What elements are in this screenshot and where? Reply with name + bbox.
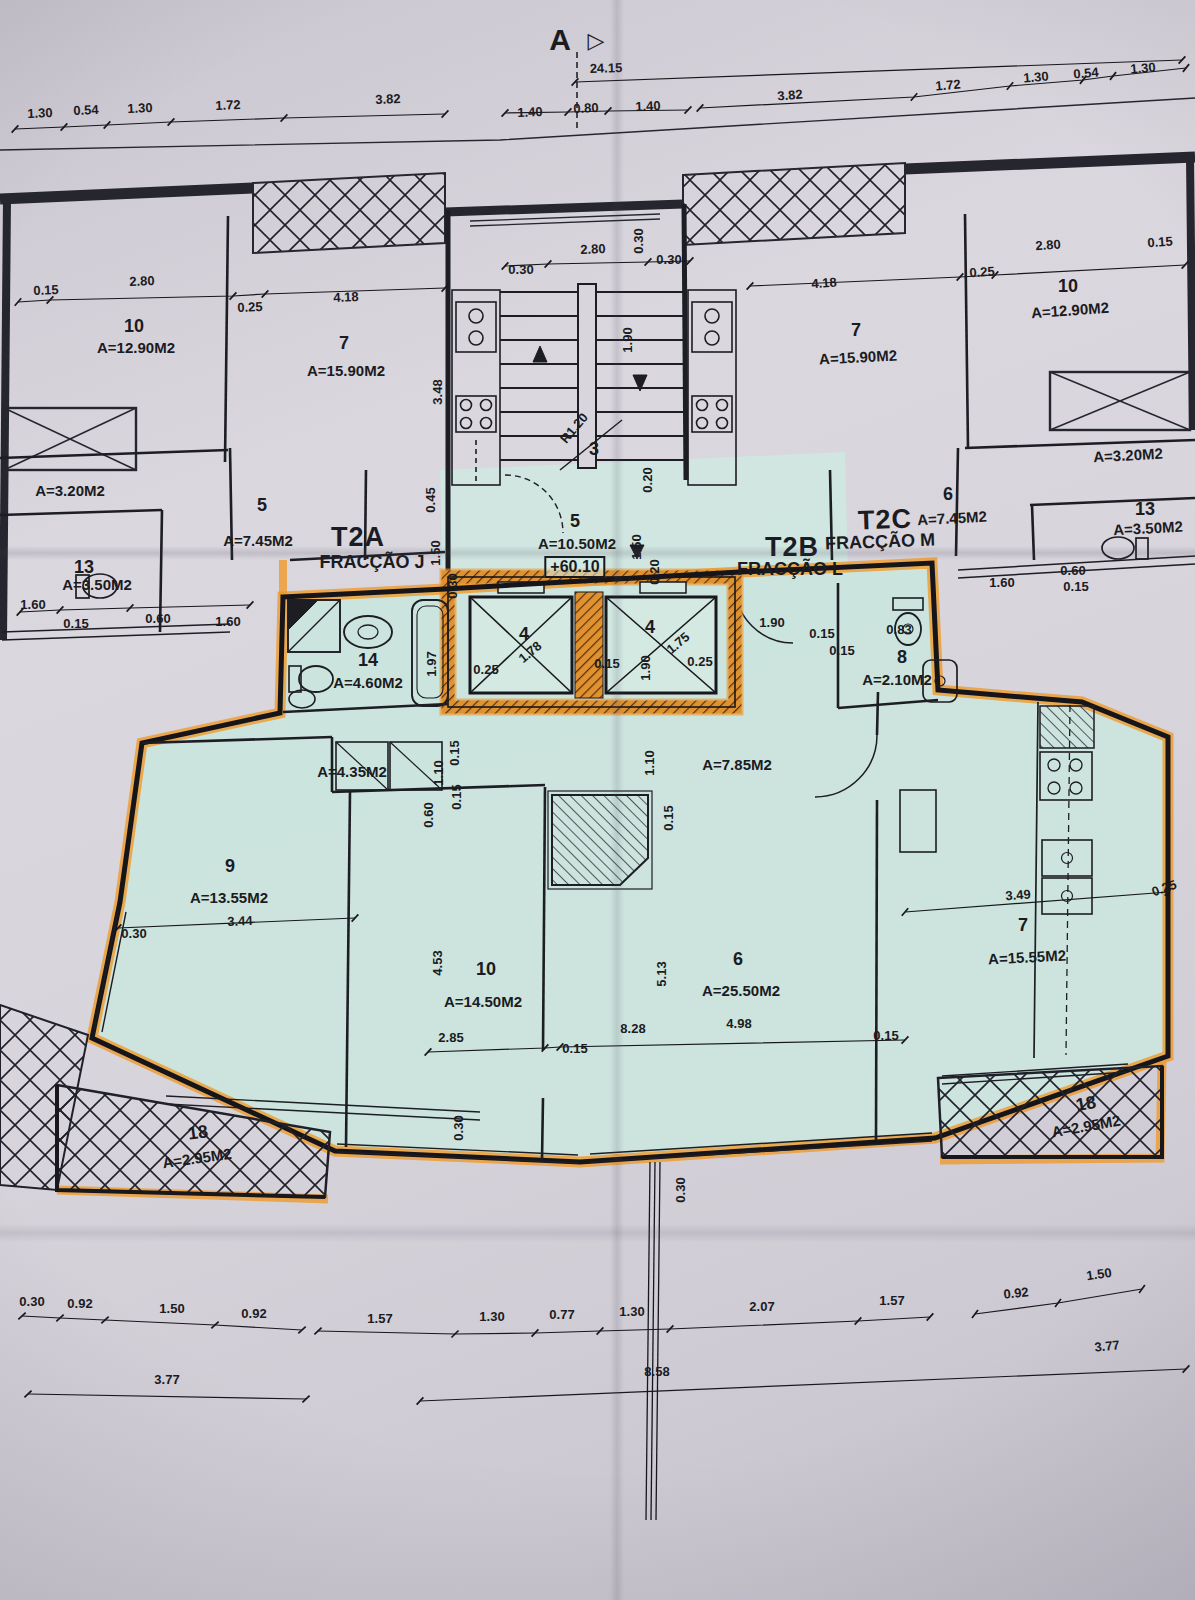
- dim-label: 0.15: [562, 1041, 587, 1056]
- unit-fraction: FRACÇÃO M: [825, 530, 936, 555]
- dim-label: 1.90: [620, 327, 635, 352]
- elevator-core: [448, 577, 735, 707]
- room-area-label: A=3.20M2: [35, 482, 105, 499]
- dim-label: 0.30: [121, 926, 146, 941]
- dim-label: 1.50: [428, 540, 443, 565]
- dim-label: 3.49: [1005, 887, 1031, 904]
- dim-label: 0.25: [969, 264, 995, 281]
- dim-label: 0.20: [640, 467, 655, 492]
- dim-label: 1.30: [1023, 68, 1050, 85]
- dim-label: 1.57: [367, 1311, 392, 1326]
- dim-label: 0.15: [447, 740, 462, 765]
- dim-label: 1.97: [424, 651, 439, 676]
- dim-label: 3.82: [777, 86, 804, 103]
- dim-label: 0.92: [241, 1306, 266, 1321]
- dim-label: 0.30: [445, 573, 460, 598]
- dim-label: 1.72: [215, 97, 241, 113]
- room-number: 13: [1135, 499, 1155, 520]
- dim-label: 1.10: [431, 760, 446, 785]
- dim-label: 0.25: [687, 654, 712, 669]
- dim-label: 0.15: [449, 784, 464, 809]
- elevation-badge: +60.10: [544, 556, 605, 578]
- unit-fraction: FRACÇÃO J: [319, 552, 424, 573]
- room-area-label: A=13.55M2: [190, 889, 268, 906]
- dim-label: 4.18: [811, 275, 837, 292]
- dim-label: 1.60: [989, 575, 1014, 590]
- dim-label: 2.07: [749, 1299, 774, 1314]
- room-number: 14: [358, 650, 378, 671]
- dim-label: 0.30: [631, 228, 646, 253]
- room-number: 10: [124, 316, 144, 337]
- dim-label: 0.30: [451, 1115, 466, 1140]
- dim-label: 2.80: [129, 273, 155, 289]
- room-area-label: A=14.50M2: [444, 993, 522, 1010]
- dim-label: 3.77: [154, 1372, 179, 1387]
- room-number: 7: [339, 333, 349, 354]
- room-number: 13: [74, 557, 94, 578]
- room-number: 4: [519, 624, 529, 645]
- dim-label: 0.20: [647, 559, 662, 584]
- dim-label: 3.77: [1094, 1337, 1121, 1355]
- elevator-right-icon: [606, 582, 716, 693]
- dim-label: 0.54: [1073, 64, 1100, 81]
- dim-label: 2.80: [1035, 237, 1061, 254]
- room-number: 18: [1074, 1092, 1097, 1116]
- room-area-label: A=4.60M2: [333, 674, 403, 691]
- dim-label: 1.50: [629, 534, 644, 559]
- dim-label: 1.60: [20, 597, 45, 612]
- dim-label: 0.30: [508, 262, 533, 277]
- dim-label: 3.48: [430, 379, 445, 404]
- dim-label: 0.60: [145, 611, 170, 626]
- dim-label: 3.82: [375, 91, 401, 107]
- dim-label: 0.60: [1060, 563, 1085, 578]
- dim-label: 1.72: [935, 76, 962, 93]
- floorplan-photo: A ▷ 24.15 1.30 0.54 1.30 1.72 3.82 1.40 …: [0, 0, 1195, 1600]
- dim-label: 24.15: [589, 60, 622, 76]
- dim-label: 1.40: [635, 98, 661, 114]
- room-number: 3: [589, 439, 599, 460]
- dim-label: 3.44: [227, 913, 253, 929]
- dim-label: 0.54: [73, 102, 99, 118]
- dim-label: 4.18: [333, 289, 359, 305]
- room-area-label: A=3.50M2: [62, 576, 132, 593]
- dim-label: 0.15: [829, 643, 854, 658]
- dim-label: 1.10: [642, 750, 657, 775]
- dim-label: 1.50: [159, 1301, 184, 1316]
- dim-label: 2.80: [580, 241, 606, 257]
- dim-label: 8.28: [620, 1021, 645, 1036]
- room-number: 6: [943, 484, 953, 505]
- unit-fraction: FRACÇÃO L: [737, 559, 843, 580]
- room-number: 10: [476, 959, 496, 980]
- dim-label: 0.15: [873, 1028, 898, 1043]
- plan-geometry: [0, 0, 1195, 1600]
- dim-label: 1.30: [479, 1309, 504, 1324]
- dim-label: 0.77: [549, 1307, 574, 1322]
- dim-label: 0.45: [423, 487, 438, 512]
- dim-label: 1.30: [27, 105, 53, 121]
- dim-label: 0.15: [594, 656, 619, 671]
- dim-label: 4.53: [430, 950, 445, 975]
- dim-label: 0.92: [1003, 1284, 1030, 1302]
- dim-label: 1.30: [127, 100, 153, 116]
- room-area-label: A=2.10M2: [862, 671, 932, 688]
- room-area-label: A=15.90M2: [307, 362, 385, 379]
- room-number: 6: [733, 949, 743, 970]
- dim-label: 0.30: [673, 1177, 688, 1202]
- section-arrow-icon: ▷: [588, 28, 605, 54]
- dim-label: 0.30: [19, 1294, 44, 1309]
- room-area-label: A=10.50M2: [538, 535, 616, 552]
- dim-label: 0.25: [237, 299, 263, 315]
- dim-label: 0.15: [661, 805, 676, 830]
- room-number: 4: [645, 617, 655, 638]
- room-number: 18: [187, 1121, 210, 1145]
- dim-label: 1.90: [638, 655, 653, 680]
- room-number: 5: [257, 495, 267, 516]
- dim-label: 1.90: [759, 615, 784, 630]
- dim-label: 0.83: [886, 622, 911, 637]
- room-number: 7: [1018, 915, 1028, 936]
- room-area-label: A=7.85M2: [702, 756, 772, 773]
- room-number: 5: [570, 511, 580, 532]
- dim-label: 1.30: [619, 1304, 644, 1319]
- dim-label: 0.60: [421, 802, 436, 827]
- dim-label: 0.15: [33, 282, 59, 298]
- dim-label: 1.57: [879, 1293, 904, 1308]
- dim-label: 4.98: [726, 1016, 751, 1031]
- dim-label: 0.30: [656, 252, 681, 267]
- dim-label: 0.15: [1063, 579, 1088, 594]
- dim-label: 0.92: [67, 1296, 92, 1311]
- room-area-label: A=3.20M2: [1093, 445, 1163, 466]
- room-number: 8: [897, 647, 907, 668]
- room-area-label: A=4.35M2: [317, 763, 387, 780]
- dim-label: 0.15: [809, 626, 834, 641]
- room-area-label: A=7.45M2: [917, 508, 987, 529]
- dim-label: 1.40: [517, 104, 543, 120]
- room-number: 9: [225, 856, 235, 877]
- dim-label: 2.85: [438, 1030, 463, 1045]
- dim-label: 0.15: [63, 616, 88, 631]
- room-area-label: A=12.90M2: [97, 339, 175, 356]
- unit-name: T2A: [331, 522, 385, 553]
- dim-label: 1.60: [215, 614, 240, 629]
- room-area-label: A=7.45M2: [223, 532, 293, 549]
- dim-label: 0.25: [473, 662, 498, 677]
- dim-label: 0.15: [1147, 234, 1173, 251]
- dim-label: 8.58: [644, 1364, 669, 1379]
- dim-label: 5.13: [654, 961, 669, 986]
- room-area-label: A=25.50M2: [702, 982, 780, 999]
- room-number: 7: [851, 320, 861, 341]
- section-marker: A: [549, 23, 571, 57]
- dim-label: 1.30: [1130, 59, 1157, 76]
- room-number: 10: [1058, 276, 1078, 297]
- room-area-label: A=3.50M2: [1113, 518, 1183, 539]
- dim-label: 0.80: [573, 100, 599, 116]
